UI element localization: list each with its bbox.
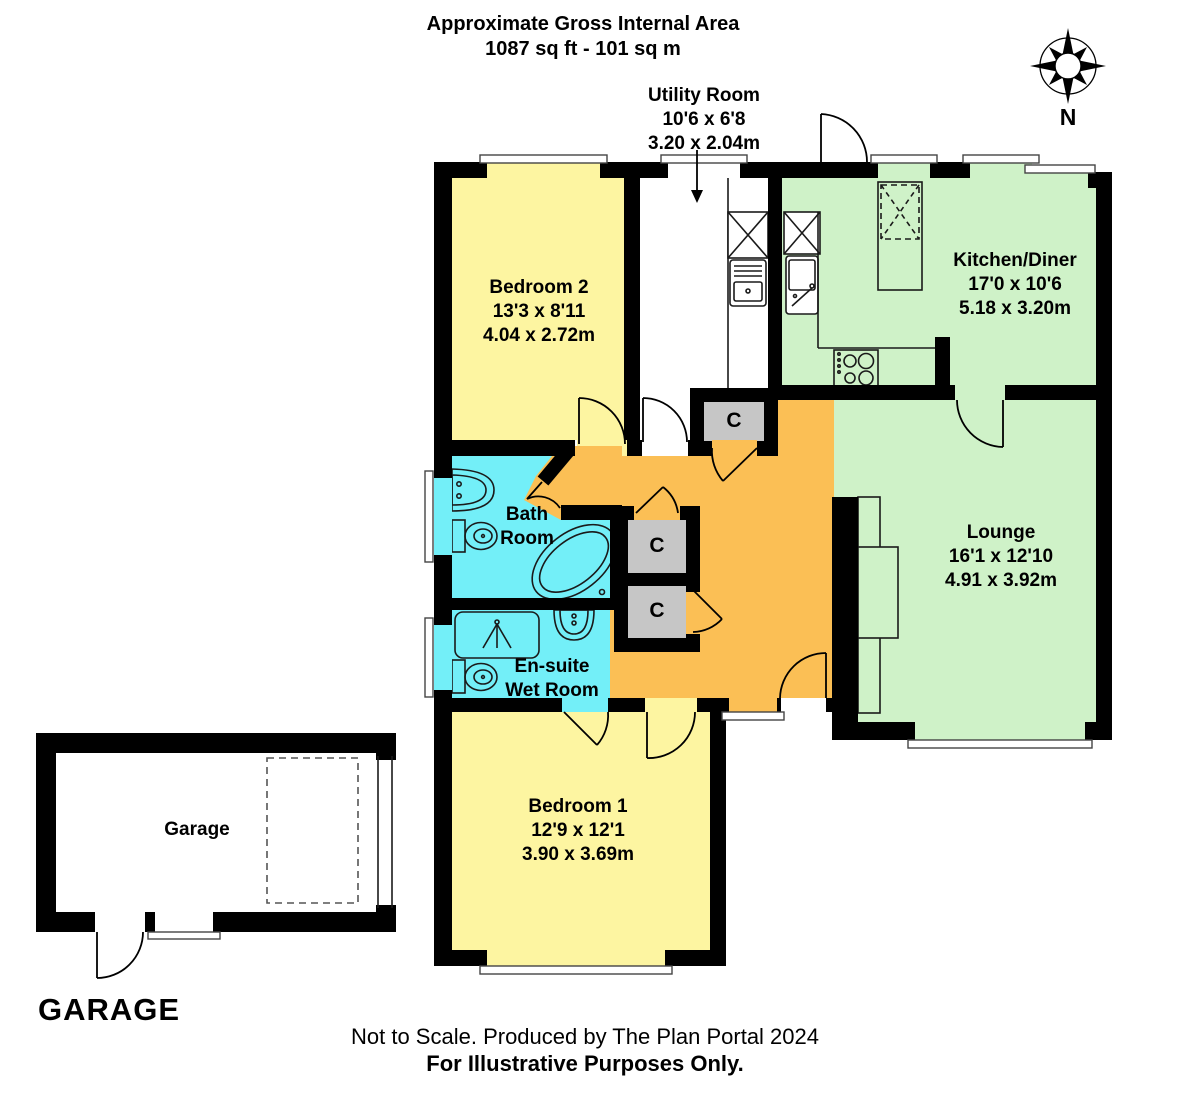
title-line1: Approximate Gross Internal Area [427, 12, 740, 37]
bedroom2-name: Bedroom 2 [483, 276, 595, 300]
lounge-metric: 4.91 x 3.92m [945, 569, 1057, 593]
ensuite-label: En-suite Wet Room [505, 655, 599, 703]
ensuite-name-line2: Wet Room [505, 679, 599, 703]
compass-rose-icon [1030, 28, 1106, 104]
kitchen-name: Kitchen/Diner [953, 249, 1077, 273]
footer-disclaimer: Not to Scale. Produced by The Plan Porta… [351, 1023, 819, 1050]
bedroom1-metric: 3.90 x 3.69m [522, 843, 634, 867]
utility-imperial: 10'6 x 6'8 [648, 108, 760, 132]
bathroom-name-line1: Bath [500, 503, 554, 527]
lounge-name: Lounge [945, 521, 1057, 545]
garage-label: Garage [164, 818, 229, 842]
closet-label-middle: C [649, 535, 664, 556]
page-title: Approximate Gross Internal Area 1087 sq … [427, 12, 740, 62]
bedroom2-label: Bedroom 2 13'3 x 8'11 4.04 x 2.72m [483, 276, 595, 348]
kitchen-imperial: 17'0 x 10'6 [953, 273, 1077, 297]
bedroom1-label: Bedroom 1 12'9 x 12'1 3.90 x 3.69m [522, 795, 634, 867]
bedroom1-name: Bedroom 1 [522, 795, 634, 819]
utility-room-label: Utility Room 10'6 x 6'8 3.20 x 2.04m [648, 84, 760, 156]
compass-north-label: N [1060, 104, 1077, 131]
lounge-label: Lounge 16'1 x 12'10 4.91 x 3.92m [945, 521, 1057, 593]
closet-label-bottom: C [649, 600, 664, 621]
garage-heading: GARAGE [38, 992, 180, 1028]
utility-metric: 3.20 x 2.04m [648, 132, 760, 156]
ensuite-name-line1: En-suite [505, 655, 599, 679]
title-line2: 1087 sq ft - 101 sq m [427, 37, 740, 62]
lounge-imperial: 16'1 x 12'10 [945, 545, 1057, 569]
closet-label-top: C [726, 410, 741, 431]
bathroom-label: Bath Room [500, 503, 554, 551]
utility-name: Utility Room [648, 84, 760, 108]
bedroom2-imperial: 13'3 x 8'11 [483, 300, 595, 324]
floor-plan-page: Approximate Gross Internal Area 1087 sq … [0, 0, 1200, 1094]
bedroom2-metric: 4.04 x 2.72m [483, 324, 595, 348]
bathroom-name-line2: Room [500, 527, 554, 551]
bedroom1-imperial: 12'9 x 12'1 [522, 819, 634, 843]
footer-purpose: For Illustrative Purposes Only. [426, 1050, 743, 1077]
kitchen-label: Kitchen/Diner 17'0 x 10'6 5.18 x 3.20m [953, 249, 1077, 321]
kitchen-metric: 5.18 x 3.20m [953, 297, 1077, 321]
